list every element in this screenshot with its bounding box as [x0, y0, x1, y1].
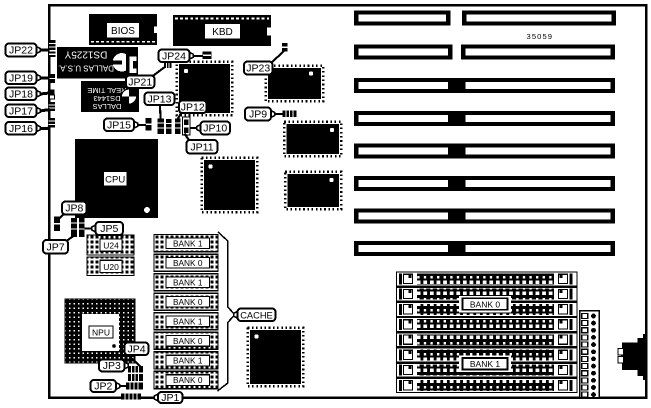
- svg-text:DS1225Y: DS1225Y: [64, 48, 107, 59]
- svg-text:DALLAS U.S.A.: DALLAS U.S.A.: [58, 63, 114, 72]
- svg-text:JP1: JP1: [161, 392, 179, 404]
- svg-text:BANK 0: BANK 0: [470, 299, 501, 309]
- svg-text:JP3: JP3: [103, 360, 121, 372]
- svg-text:JP17: JP17: [9, 105, 33, 117]
- svg-text:JP4: JP4: [127, 343, 145, 355]
- svg-text:JP13: JP13: [148, 93, 172, 105]
- svg-text:BANK 1: BANK 1: [173, 356, 203, 366]
- svg-text:BANK 0: BANK 0: [173, 258, 203, 268]
- svg-text:REAL TIME: REAL TIME: [87, 86, 126, 95]
- svg-text:JP18: JP18: [9, 88, 33, 100]
- svg-text:JP19: JP19: [9, 72, 33, 84]
- svg-text:BANK 1: BANK 1: [470, 359, 501, 369]
- svg-text:JP24: JP24: [162, 50, 186, 62]
- svg-text:JP21: JP21: [128, 76, 152, 88]
- svg-text:JP2: JP2: [94, 381, 112, 393]
- svg-text:KBD: KBD: [212, 27, 233, 38]
- svg-text:BANK 1: BANK 1: [173, 277, 203, 287]
- svg-text:NPU: NPU: [92, 328, 110, 338]
- svg-text:JP5: JP5: [100, 223, 118, 235]
- svg-text:JP7: JP7: [46, 241, 64, 253]
- svg-text:BIOS: BIOS: [111, 26, 135, 37]
- svg-text:U24: U24: [103, 241, 119, 251]
- svg-text:JP23: JP23: [246, 63, 270, 75]
- svg-text:35059: 35059: [527, 32, 554, 41]
- svg-text:CPU: CPU: [105, 175, 125, 186]
- svg-text:BANK 0: BANK 0: [173, 375, 203, 385]
- svg-text:BANK 0: BANK 0: [173, 297, 203, 307]
- svg-text:BANK 1: BANK 1: [173, 317, 203, 327]
- svg-text:BANK 1: BANK 1: [173, 238, 203, 248]
- svg-text:CACHE: CACHE: [240, 310, 273, 320]
- svg-text:JP11: JP11: [190, 141, 213, 153]
- svg-text:JP16: JP16: [9, 123, 33, 135]
- svg-text:JP9: JP9: [249, 109, 267, 121]
- svg-text:JP22: JP22: [9, 45, 33, 57]
- svg-text:JP15: JP15: [107, 119, 131, 131]
- svg-text:JP8: JP8: [65, 203, 83, 215]
- svg-text:U20: U20: [103, 262, 119, 272]
- svg-text:JP12: JP12: [181, 101, 205, 113]
- svg-text:BANK 0: BANK 0: [173, 336, 203, 346]
- svg-text:JP10: JP10: [203, 123, 227, 135]
